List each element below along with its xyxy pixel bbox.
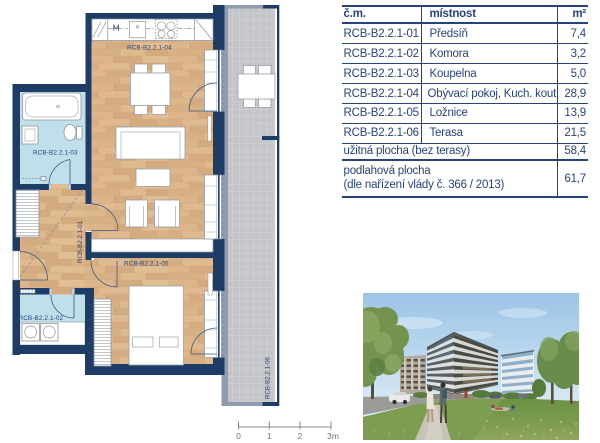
svg-text:RCB-B2.2.1-01: RCB-B2.2.1-01 [77,220,84,263]
svg-text:RCB-B2.2.1-06: RCB-B2.2.1-06 [265,356,272,399]
svg-text:RCB-B2.2.1-02: RCB-B2.2.1-02 [19,315,64,322]
svg-text:0: 0 [236,431,241,441]
svg-text:1: 1 [267,431,272,441]
svg-text:RCB-B2.2.1-03: RCB-B2.2.1-03 [33,150,78,157]
svg-text:RCB-B2.2.1-04: RCB-B2.2.1-04 [127,45,172,52]
svg-text:2: 2 [298,431,303,441]
svg-text:RCB-B2.2.1-05: RCB-B2.2.1-05 [124,261,169,268]
svg-text:3m: 3m [327,431,339,441]
